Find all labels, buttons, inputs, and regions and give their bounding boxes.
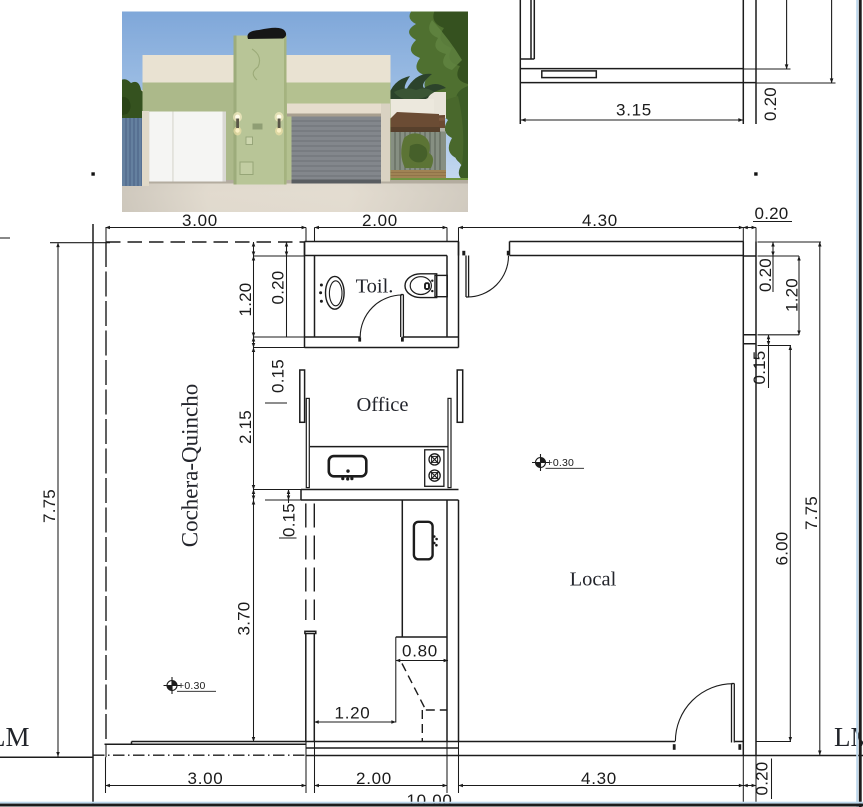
svg-text:7.75: 7.75: [40, 489, 59, 523]
svg-text:0.20: 0.20: [755, 204, 789, 223]
svg-text:0.15: 0.15: [269, 359, 288, 393]
svg-text:LM: LM: [0, 722, 30, 752]
svg-text:+0.30: +0.30: [547, 457, 575, 469]
svg-text:Office: Office: [357, 394, 409, 416]
svg-text:2.00: 2.00: [356, 769, 392, 788]
svg-text:0.20: 0.20: [756, 258, 775, 292]
svg-text:3.15: 3.15: [616, 100, 652, 119]
svg-text:0.20: 0.20: [761, 87, 780, 121]
svg-text:Toil.: Toil.: [356, 276, 394, 298]
svg-text:2.00: 2.00: [362, 211, 398, 230]
svg-text:4.30: 4.30: [582, 211, 618, 230]
svg-text:Cochera-Quincho: Cochera-Quincho: [178, 384, 203, 548]
svg-text:0.20: 0.20: [269, 271, 288, 305]
svg-text:0.80: 0.80: [402, 642, 438, 661]
svg-text:LM: LM: [834, 722, 863, 752]
svg-text:3.70: 3.70: [235, 602, 254, 636]
svg-text:2.15: 2.15: [236, 410, 255, 444]
svg-text:3.00: 3.00: [188, 769, 224, 788]
svg-text:4.30: 4.30: [581, 769, 617, 788]
svg-text:7.75: 7.75: [802, 496, 821, 530]
svg-text:1.20: 1.20: [783, 278, 802, 312]
svg-text:Local: Local: [570, 569, 617, 591]
svg-text:0.15: 0.15: [280, 503, 299, 537]
svg-text:+0.30: +0.30: [178, 680, 206, 692]
svg-text:0.20: 0.20: [753, 762, 772, 796]
svg-text:1.20: 1.20: [236, 283, 255, 317]
svg-text:0.15: 0.15: [750, 351, 769, 385]
svg-text:1.20: 1.20: [335, 704, 371, 723]
svg-text:3.00: 3.00: [182, 211, 218, 230]
svg-text:6.00: 6.00: [773, 532, 792, 566]
